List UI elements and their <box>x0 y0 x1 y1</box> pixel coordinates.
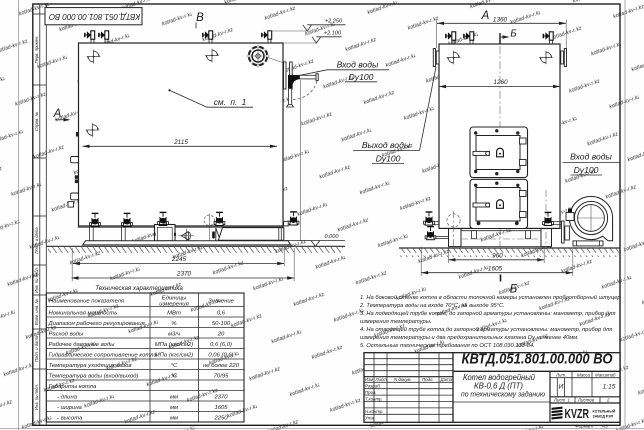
svg-text:- ширина: - ширина <box>57 405 83 411</box>
svg-text:Гидравлическое сопротивление к: Гидравлическое сопротивление котла <box>49 352 158 358</box>
svg-text:Масса: Масса <box>577 372 591 377</box>
svg-text:°С: °С <box>171 373 178 379</box>
svg-text:Справ. №: Справ. № <box>34 112 39 131</box>
svg-text:не более 220: не более 220 <box>203 363 240 369</box>
svg-text:Разраб.: Разраб. <box>365 384 381 389</box>
svg-text:2370: 2370 <box>213 394 228 400</box>
svg-text:Котел водогрейный: Котел водогрейный <box>463 372 535 382</box>
svg-text:2370: 2370 <box>176 271 192 278</box>
svg-text:Подп. и дата: Подп. и дата <box>34 335 39 362</box>
svg-text:- высота: - высота <box>57 415 83 421</box>
svg-text:мм: мм <box>170 415 178 421</box>
svg-text:2: 2 <box>606 398 610 403</box>
svg-text:Выход воды: Выход воды <box>362 140 411 150</box>
svg-text:КОТЕЛЬНЫЙ: КОТЕЛЬНЫЙ <box>593 409 616 413</box>
svg-text:Листов: Листов <box>577 398 595 403</box>
svg-text:1605: 1605 <box>214 405 228 411</box>
svg-text:А: А <box>481 10 490 22</box>
svg-text:Dy100: Dy100 <box>349 72 374 82</box>
svg-text:2. Температура воды на входе: 2. Температура воды на входе 70°С, на вы… <box>359 303 505 309</box>
svg-text:МВт: МВт <box>167 310 181 316</box>
svg-text:1605: 1605 <box>488 265 503 272</box>
svg-text:Температура воды (вход/выход): Температура воды (вход/выход) <box>49 373 139 379</box>
svg-text:1360: 1360 <box>493 17 508 24</box>
svg-text:Наименование показателя: Наименование показателя <box>49 299 125 305</box>
svg-text:0,6: 0,6 <box>217 310 226 316</box>
svg-text:4. На отводящей трубе котла,д: 4. На отводящей трубе котла,до запорной … <box>360 326 612 333</box>
svg-text:Перв. примен.: Перв. примен. <box>34 36 39 64</box>
svg-text:Подп. и дата: Подп. и дата <box>34 227 39 254</box>
svg-text:KVZR: KVZR <box>565 406 590 421</box>
svg-text:0,06 (0,6): 0,06 (0,6) <box>208 352 233 358</box>
svg-text:Расход воды: Расход воды <box>49 331 85 337</box>
svg-text:Б: Б <box>510 284 518 296</box>
svg-text:измерения температуры.: измерения температуры. <box>360 319 432 325</box>
svg-text:Формат: Формат <box>575 424 593 429</box>
svg-text:Б: Б <box>510 29 517 40</box>
svg-text:Температура уходящих газов: Температура уходящих газов <box>49 363 132 369</box>
svg-text:960: 960 <box>492 252 503 259</box>
svg-text:измерения температуры и два пр: измерения температуры и два предохраните… <box>360 335 579 341</box>
svg-text:Вход воды: Вход воды <box>337 60 379 70</box>
svg-text:5. Остальные технические треб: 5. Остальные технические требования по О… <box>360 343 535 349</box>
svg-text:Т.контр.: Т.контр. <box>365 396 383 401</box>
svg-text:0,6 (6,0): 0,6 (6,0) <box>210 342 232 348</box>
svg-text:Подп.: Подп. <box>422 377 434 382</box>
svg-text:1. На боковой стенке котла в: 1. На боковой стенке котла в области топ… <box>360 294 621 301</box>
svg-text:Диапазон рабочего регулировани: Диапазон рабочего регулирования <box>48 321 146 327</box>
svg-text:Дата: Дата <box>440 377 453 382</box>
svg-text:°С: °С <box>171 363 178 369</box>
svg-text:Вход воды: Вход воды <box>570 152 612 162</box>
svg-text:Техническая характеристика: Техническая характеристика <box>95 285 183 292</box>
svg-text:МПа (кгс/см2): МПа (кгс/см2) <box>155 352 194 358</box>
svg-text:2115: 2115 <box>173 139 188 146</box>
svg-text:1:15: 1:15 <box>603 384 616 391</box>
svg-text:Масштаб: Масштаб <box>595 372 616 377</box>
svg-text:20: 20 <box>217 331 225 337</box>
svg-text:Инв. № дубл.: Инв. № дубл. <box>34 267 39 293</box>
svg-text:по техническому заданию: по техническому заданию <box>461 390 545 399</box>
svg-text:3. На подводящей трубе котла,: 3. На подводящей трубе котла, до запорно… <box>360 310 615 317</box>
svg-text:%: % <box>171 321 176 327</box>
svg-text:Номинальная мощность: Номинальная мощность <box>49 310 118 316</box>
svg-text:Инв. № подл.: Инв. № подл. <box>34 384 39 410</box>
svg-text:+2.250: +2.250 <box>325 19 343 25</box>
svg-text:Изм: Изм <box>365 377 373 382</box>
svg-text:КВТД.051.801.00.000 ВО: КВТД.051.801.00.000 ВО <box>49 12 140 21</box>
svg-text:мм: мм <box>170 405 178 411</box>
svg-text:Лист: Лист <box>375 377 388 382</box>
svg-text:ЗАВОД РЭП: ЗАВОД РЭП <box>593 414 614 418</box>
svg-text:50-100: 50-100 <box>212 321 231 327</box>
svg-text:Взам. инв. №: Взам. инв. № <box>34 299 39 325</box>
svg-text:Значение: Значение <box>208 299 235 305</box>
svg-text:2245: 2245 <box>171 256 187 263</box>
svg-text:70/95: 70/95 <box>214 373 229 379</box>
svg-text:измерения: измерения <box>159 302 189 308</box>
svg-text:Н.контр.: Н.контр. <box>365 409 384 414</box>
svg-text:Dy100: Dy100 <box>376 154 401 164</box>
svg-text:- длина: - длина <box>57 394 78 400</box>
svg-text:м3/ч: м3/ч <box>168 331 180 337</box>
svg-text:КВТД.051.801.00.000 ВО: КВТД.051.801.00.000 ВО <box>462 352 614 368</box>
svg-text:мм: мм <box>170 394 178 400</box>
svg-text:Dy100: Dy100 <box>574 165 599 175</box>
svg-text:N докум.: N докум. <box>394 377 412 382</box>
svg-text:Лит.: Лит. <box>555 372 566 377</box>
svg-text:2250: 2250 <box>213 415 228 421</box>
svg-text:В: В <box>196 12 204 24</box>
svg-text:И: И <box>559 384 564 391</box>
svg-text:МПа (кгс/см2): МПа (кгс/см2) <box>155 342 194 348</box>
svg-text:А: А <box>53 108 62 120</box>
svg-text:0.000: 0.000 <box>325 234 340 240</box>
svg-text:+2.100: +2.100 <box>324 31 342 37</box>
svg-text:Рабочее давление воды: Рабочее давление воды <box>49 342 116 348</box>
svg-text:1260: 1260 <box>493 79 508 86</box>
svg-text:см. п. 1: см. п. 1 <box>214 97 247 107</box>
svg-text:Утв.: Утв. <box>365 416 375 421</box>
svg-text:А3: А3 <box>601 424 608 429</box>
svg-text:Габариты котла: Габариты котла <box>49 384 97 390</box>
svg-text:Лист: Лист <box>553 398 566 403</box>
svg-text:Пров.: Пров. <box>365 390 377 395</box>
